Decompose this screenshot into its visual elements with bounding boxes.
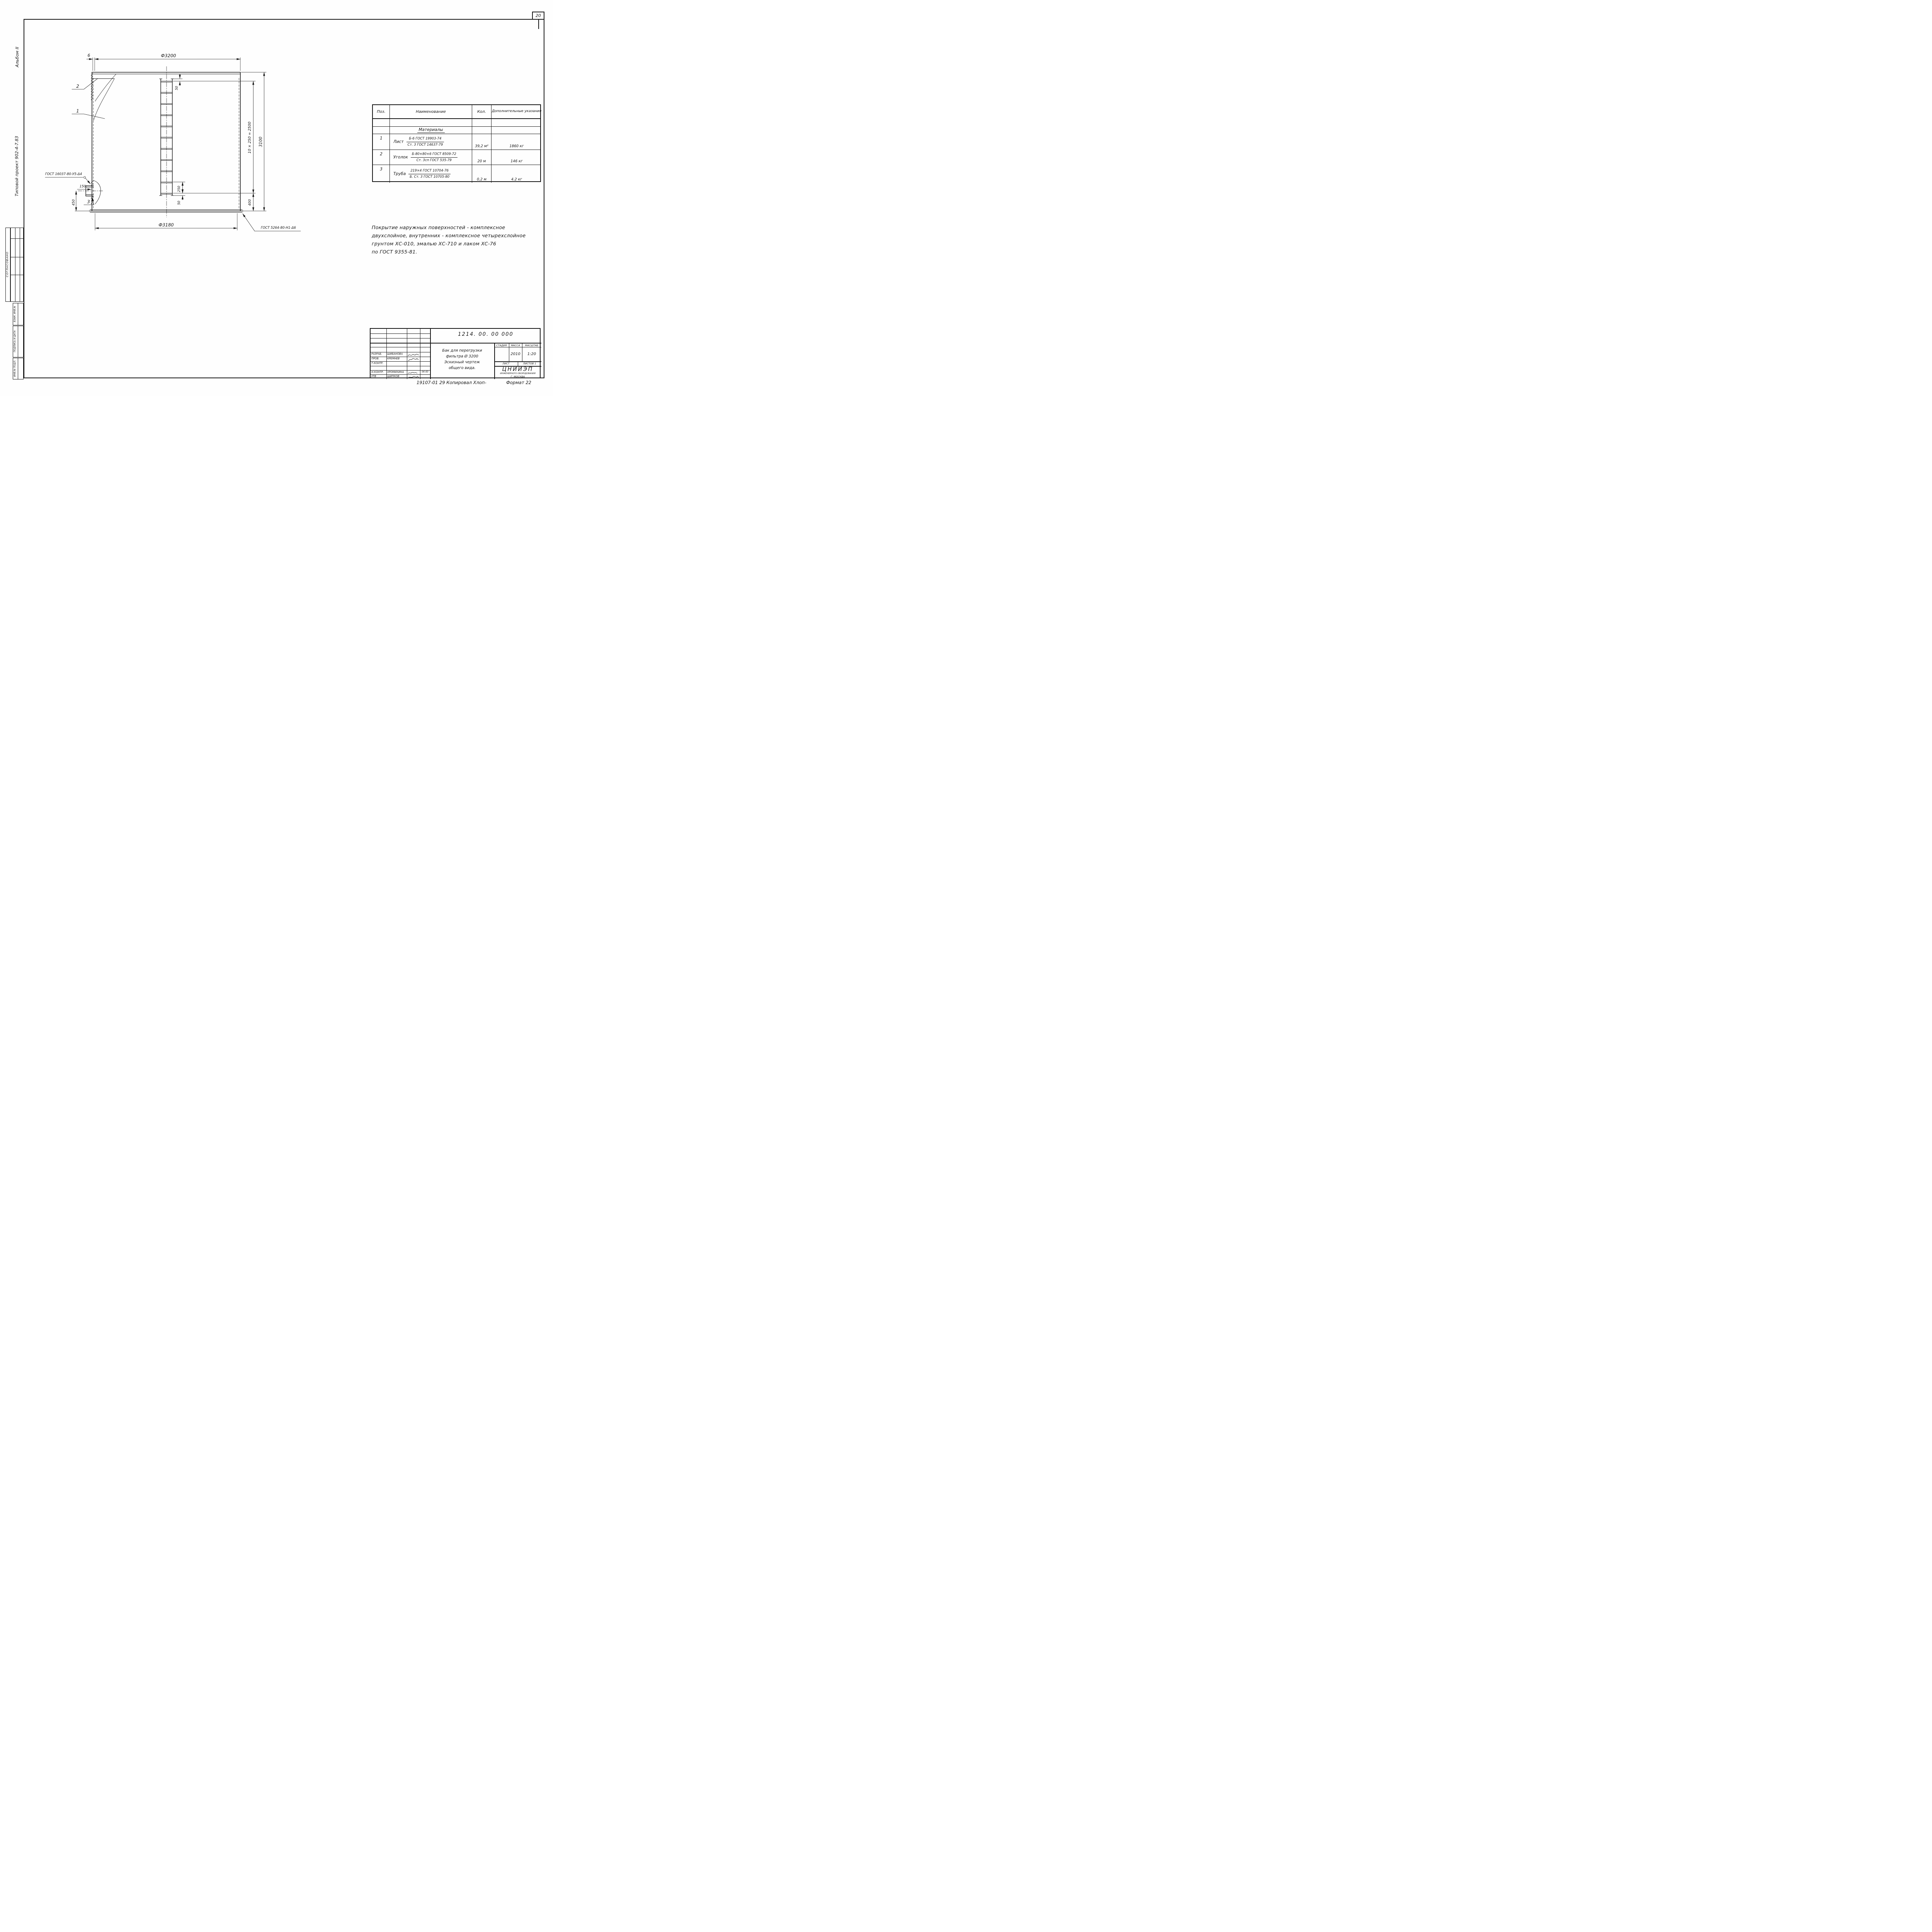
org-city: Г. МОСКВА (494, 375, 541, 378)
weld-note-left: ГОСТ 16037-80-У5-Δ4 (45, 172, 82, 176)
dim-text-dia3180: Ф3180 (158, 222, 173, 228)
break-line-curves (94, 74, 116, 121)
stamp-row-razrab: РАЗРАБ. ШИБАНОВА (371, 352, 430, 357)
table-row: 3 Труба 219×4 ГОСТ 10704-76 Б. Ст. 3 ГОС… (373, 165, 540, 183)
dim-text-450: 450 (72, 199, 76, 206)
row-spec-bottom: Ст. 3сп ГОСТ 535-79 (411, 158, 457, 163)
callout-3-text: 3 (87, 199, 90, 204)
note-line: Покрытие наружных поверхностей - комплек… (372, 223, 538, 231)
callout-1-text: 1 (76, 108, 79, 114)
signature (407, 357, 420, 362)
title-line: Бак для перегрузки (431, 348, 493, 354)
weld-left-circle (84, 177, 86, 179)
callout-3-leader (92, 197, 94, 205)
stamp-row-utv: УТВ ШИПКОВ (371, 375, 430, 379)
row-spec-bottom: Б. Ст. 3 ГОСТ 10705-80 (408, 174, 451, 179)
sheets-header: ЛИСТОВ 1 (518, 362, 541, 365)
stage-header: СТАДИЯ (494, 344, 509, 347)
role-label: УТВ (371, 375, 386, 378)
dim-text-rungs: 10 × 250 = 2500 (248, 122, 252, 153)
coating-notes: Покрытие наружных поверхностей - комплек… (372, 223, 538, 256)
weld-note-bottom: ГОСТ 5264-80-Н1-Δ6 (261, 226, 296, 230)
role-label: Н.КОНТР. (371, 371, 386, 374)
weld-bottom-leader (243, 214, 255, 231)
table-row: 2 Уголок Б-80×80×6 ГОСТ 8509-72 Ст. 3сп … (373, 150, 540, 165)
signature (407, 375, 420, 379)
copy-note: 19107-01 29 Копировал Хлоп- (417, 380, 486, 385)
scale-value: 1:20 (522, 352, 541, 356)
stamp-row-prov: ПРОВ. КРЕМНЕВ (371, 357, 430, 361)
row-name: Труба (393, 172, 406, 176)
row-spec-top: 219×4 ГОСТ 10704-76 (408, 168, 451, 174)
row-qty: 39,2 м² (472, 134, 492, 150)
row-spec: Б-80×80×6 ГОСТ 8509-72 Ст. 3сп ГОСТ 535-… (411, 152, 457, 163)
empty-row (373, 119, 540, 127)
signature (407, 371, 420, 375)
person-name: КРЕМНЕВ (387, 357, 406, 360)
dim-text-400: 400 (248, 199, 252, 206)
header-pos: Поз. (373, 105, 390, 118)
title-line: фильтра Ø 3200 (431, 354, 493, 359)
callout-2-leader (72, 78, 98, 89)
role-label: РАЗРАБ. (371, 352, 386, 355)
row-spec-bottom: Ст. 3 ГОСТ 14637-79 (406, 142, 444, 147)
row-pos: 3 (373, 165, 390, 183)
title-line: общего вида. (431, 365, 493, 371)
row-note: 146 кг (492, 150, 542, 165)
sheet-header: ЛИСТ (494, 362, 518, 365)
dim-text-50bot: 50 (177, 201, 181, 205)
dim-text-50top: 50 (175, 86, 179, 90)
note-line: двухслойное, внутренних - комплексное че… (372, 231, 538, 240)
org-name: ЦНИИЭП (494, 366, 541, 372)
drawing-title: Бак для перегрузки фильтра Ø 3200 Эскизн… (431, 348, 493, 371)
title-line: Эскизный чертеж (431, 359, 493, 365)
header-note: Дополнительные указания (492, 105, 542, 118)
row-spec: 219×4 ГОСТ 10704-76 Б. Ст. 3 ГОСТ 10705-… (408, 168, 451, 179)
note-line: грунтом ХС-010, эмалью ХС-710 и лаком ХС… (372, 240, 538, 248)
format-note: Формат 22 (506, 380, 531, 385)
callout-2-text: 2 (76, 83, 79, 89)
row-spec-top: Б-6 ГОСТ 19903-74 (406, 136, 444, 142)
header-name: Наименование (390, 105, 472, 118)
dim-text-150: 150 (80, 185, 86, 189)
row-name: Лист (393, 139, 404, 144)
row-note: 1860 кг (492, 134, 542, 150)
person-name: ХРОМИХИНА (387, 371, 406, 374)
row-note: 4.2 кг (492, 165, 542, 183)
org-dept: ИНЖЕНЕРНОГО ОБОРУДОВАНИЯ (494, 372, 541, 375)
role-label: ПРОВ. (371, 357, 386, 360)
section-row: Материалы (373, 127, 540, 134)
signature (407, 353, 420, 357)
note-line: по ГОСТ 9355-81. (372, 248, 538, 256)
row-qty: 0,2 м (472, 165, 492, 183)
weld-left-leader (85, 178, 90, 184)
person-name: ШИБАНОВА (387, 352, 406, 355)
stamp-row-nkontr: Н.КОНТР. ХРОМИХИНА 06 83 (371, 371, 430, 374)
table-row: 1 Лист Б-6 ГОСТ 19903-74 Ст. 3 ГОСТ 1463… (373, 134, 540, 150)
materials-header-row: Поз. Наименование Кол. Дополнительные ук… (373, 105, 540, 119)
stamp-row-tkontr: Т.КОНТР. (371, 362, 430, 366)
materials-table: Поз. Наименование Кол. Дополнительные ук… (372, 104, 541, 182)
dim-text-3100: 3100 (259, 136, 263, 147)
header-qty: Кол. (472, 105, 492, 118)
row-qty: 20 м (472, 150, 492, 165)
person-name: ШИПКОВ (387, 375, 406, 378)
mass-header: МАССА (509, 344, 522, 347)
dim-text-dia3200: Ф3200 (161, 53, 176, 58)
callout-1-leader (72, 114, 105, 119)
drawing-sheet: 20 Альбом II Типовой проект 902-4-7.83 С… (0, 0, 553, 396)
nozzle-break-curve (94, 180, 101, 204)
role-label: Т.КОНТР. (371, 362, 386, 365)
row-pos: 1 (373, 134, 390, 150)
mass-value: 2010 (509, 352, 522, 356)
section-title: Материалы (417, 128, 445, 133)
row-spec: Б-6 ГОСТ 19903-74 Ст. 3 ГОСТ 14637-79 (406, 136, 444, 147)
extension-lines (75, 58, 266, 230)
scale-header: МАСШТАБ (522, 344, 541, 347)
row-name: Уголок (393, 155, 408, 160)
dim-text-thk6: 6 (88, 53, 90, 58)
document-number: 1214. 00. 00 000 (430, 332, 541, 337)
row-pos: 2 (373, 150, 390, 165)
dim-text-250: 250 (177, 186, 181, 192)
title-block: 1214. 00. 00 000 Бак для перегрузки филь… (370, 328, 541, 378)
sign-date: 06 83 (420, 371, 430, 373)
row-spec-top: Б-80×80×6 ГОСТ 8509-72 (411, 152, 457, 157)
